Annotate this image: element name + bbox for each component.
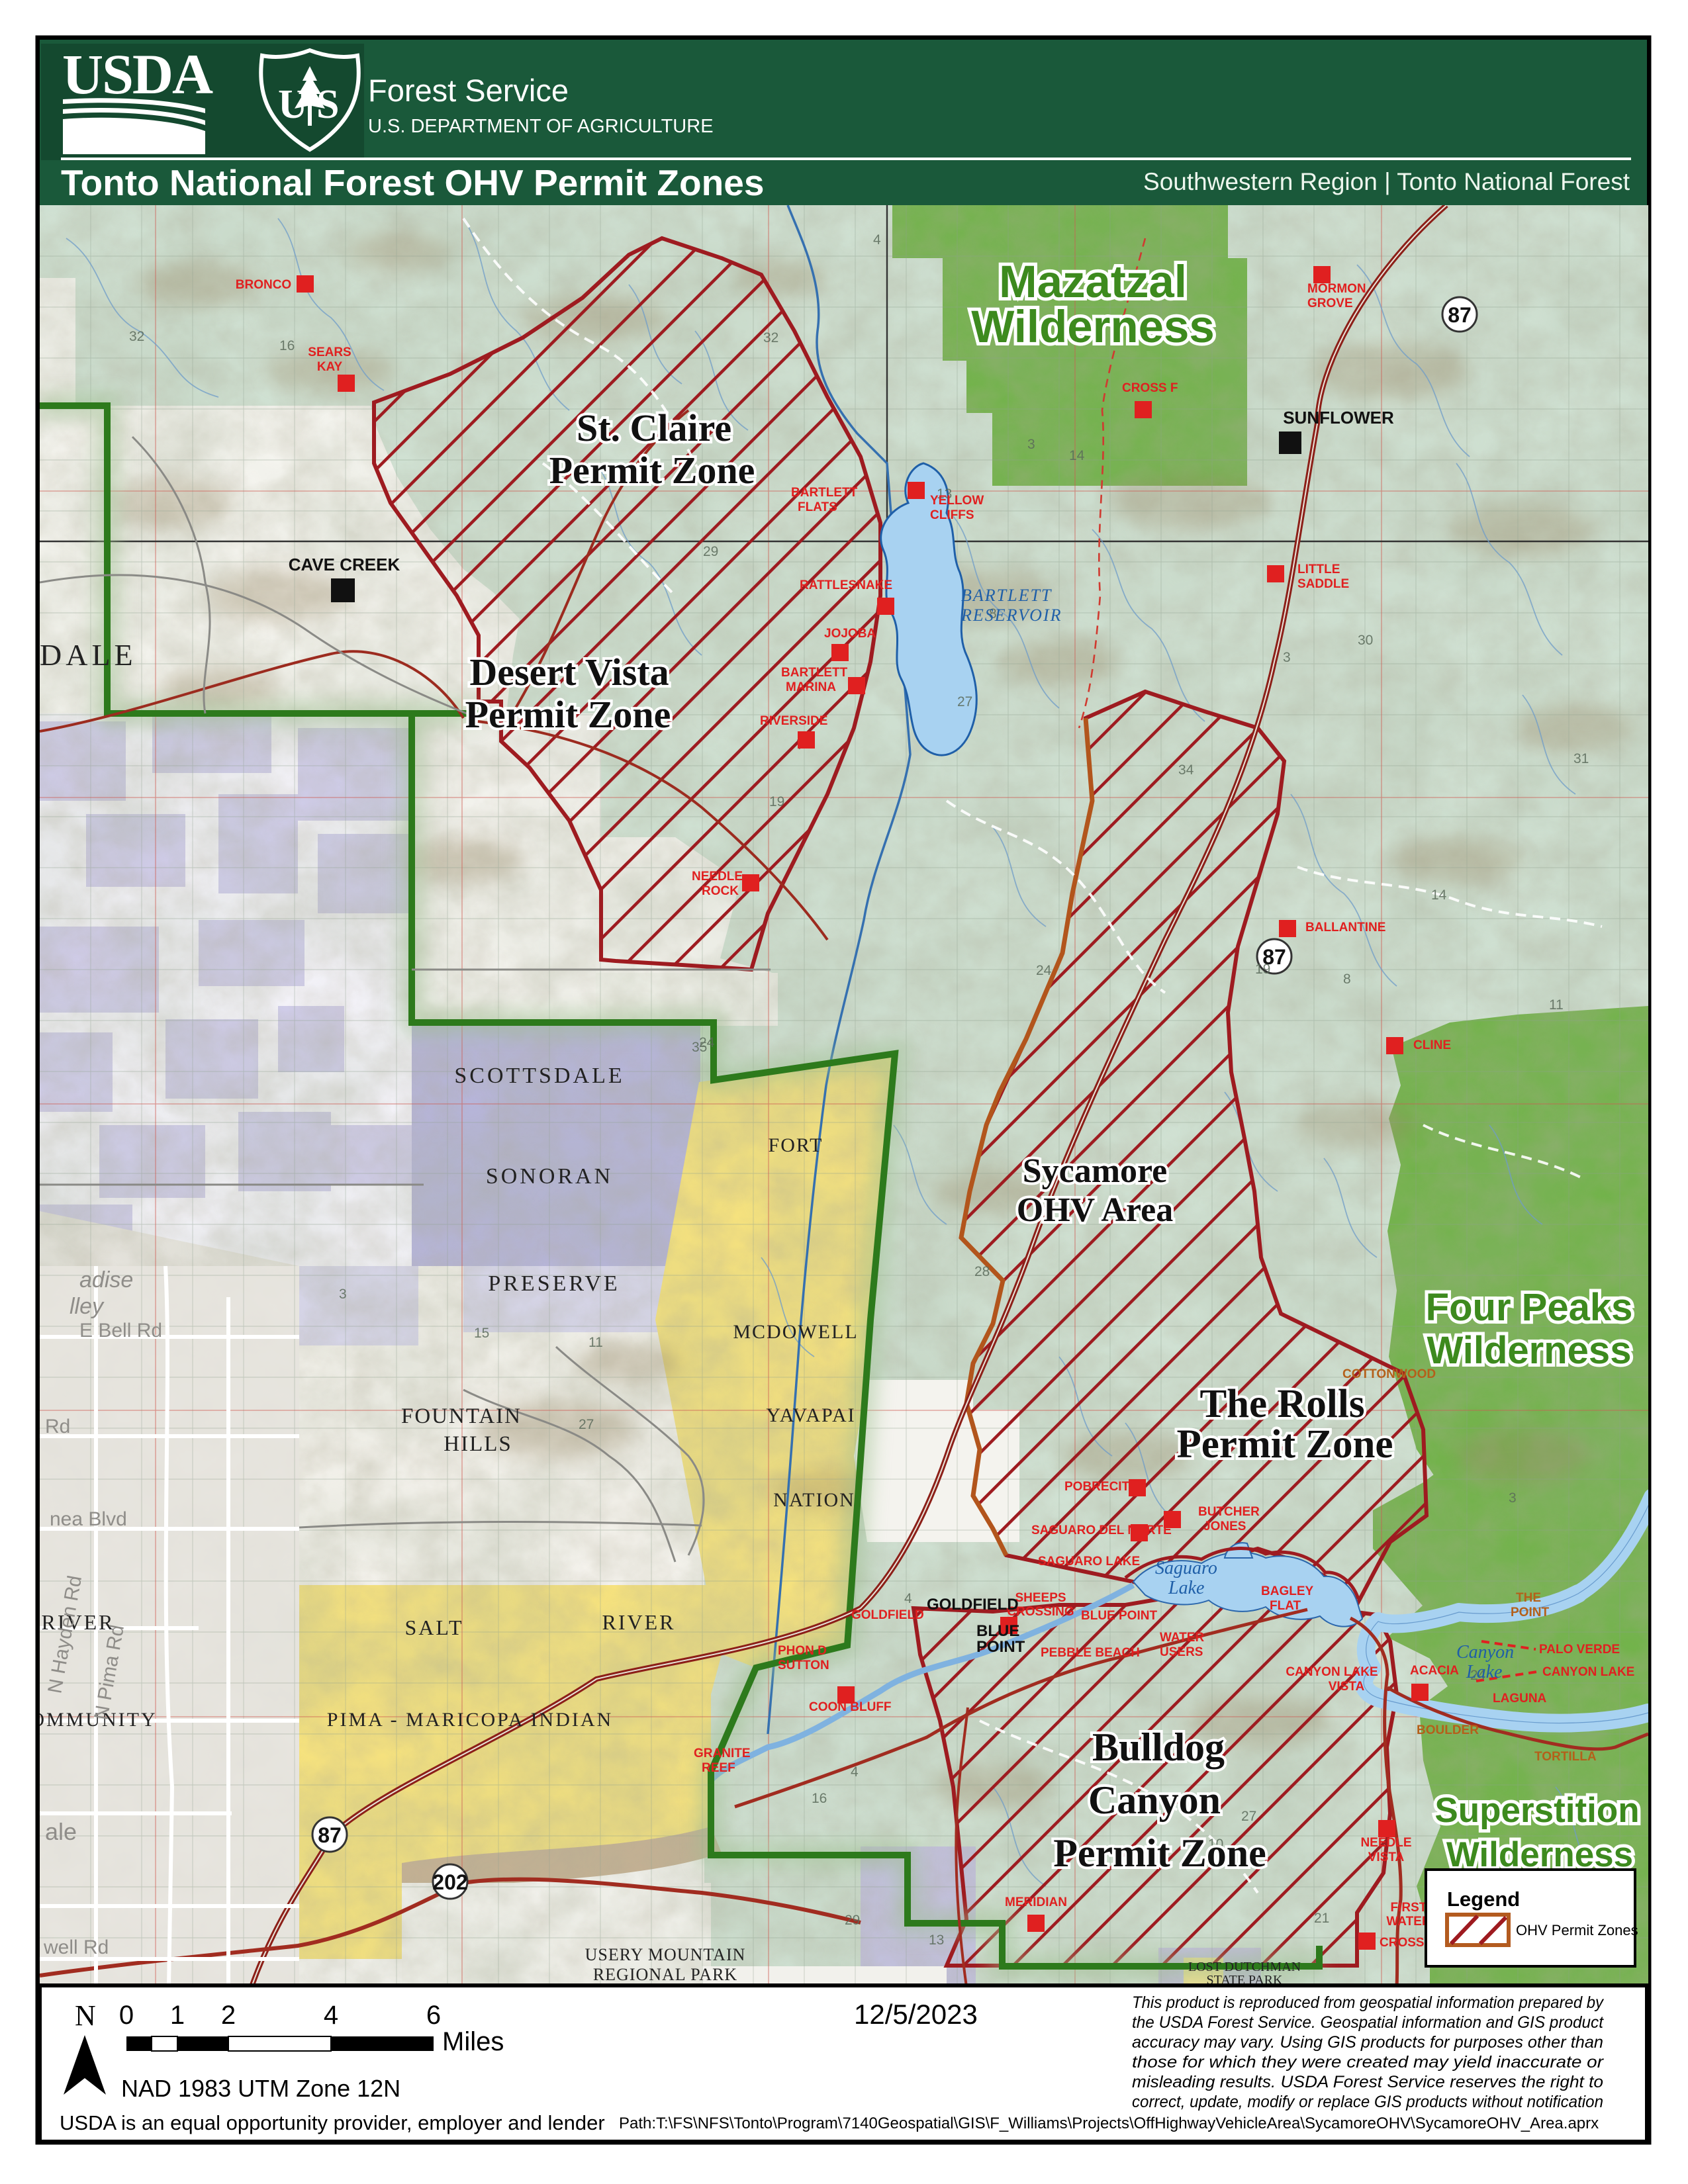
svg-text:CANYON LAKE: CANYON LAKE: [1286, 1665, 1378, 1679]
svg-text:YAVAPAI: YAVAPAI: [766, 1404, 855, 1426]
svg-text:27: 27: [1241, 1809, 1256, 1824]
svg-text:RATTLESNAKE: RATTLESNAKE: [800, 578, 892, 592]
svg-text:OHV Permit Zones: OHV Permit Zones: [1516, 1922, 1638, 1938]
svg-text:PHON D: PHON D: [778, 1644, 827, 1658]
svg-text:USDA: USDA: [62, 42, 213, 106]
svg-text:LITTLE: LITTLE: [1297, 563, 1340, 576]
svg-text:REGIONAL PARK: REGIONAL PARK: [593, 1965, 737, 1984]
svg-text:THE: THE: [1516, 1591, 1541, 1605]
svg-text:FOUNTAIN: FOUNTAIN: [401, 1404, 522, 1428]
svg-text:SALT: SALT: [404, 1615, 463, 1639]
svg-text:21: 21: [1314, 1911, 1329, 1926]
svg-text:NEEDLE: NEEDLE: [692, 870, 743, 884]
svg-text:3: 3: [339, 1287, 347, 1302]
svg-text:Canyon: Canyon: [1456, 1642, 1514, 1662]
svg-text:JOJOBA: JOJOBA: [824, 627, 876, 641]
svg-text:30: 30: [1358, 633, 1373, 648]
svg-text:15: 15: [474, 1326, 489, 1341]
svg-text:Wilderness: Wilderness: [971, 301, 1215, 352]
svg-text:3: 3: [1509, 1490, 1517, 1506]
svg-text:MARINA: MARINA: [786, 680, 836, 694]
svg-text:Miles: Miles: [442, 2027, 504, 2056]
svg-text:ROCK: ROCK: [702, 884, 739, 898]
svg-text:BRONCO: BRONCO: [236, 278, 291, 292]
svg-text:VISTA: VISTA: [1368, 1850, 1405, 1864]
svg-text:32: 32: [763, 330, 778, 345]
svg-text:Permit Zone: Permit Zone: [549, 449, 755, 492]
svg-text:HILLS: HILLS: [444, 1432, 512, 1456]
svg-text:4: 4: [904, 1591, 912, 1606]
svg-text:19: 19: [1255, 962, 1270, 977]
svg-text:87: 87: [1448, 303, 1472, 327]
svg-text:202: 202: [432, 1870, 467, 1894]
svg-text:ale: ale: [45, 1818, 77, 1845]
svg-text:11: 11: [1549, 997, 1564, 1013]
svg-text:BOULDER: BOULDER: [1417, 1723, 1479, 1737]
svg-text:Lake: Lake: [1466, 1662, 1502, 1682]
svg-text:POINT: POINT: [1511, 1606, 1549, 1619]
svg-text:LOST DUTCHMAN: LOST DUTCHMAN: [1188, 1960, 1301, 1974]
svg-text:32: 32: [129, 329, 144, 344]
svg-text:SONORAN: SONORAN: [486, 1164, 613, 1189]
svg-text:U.S. DEPARTMENT OF AGRICULTURE: U.S. DEPARTMENT OF AGRICULTURE: [368, 116, 714, 137]
svg-text:BAGLEY: BAGLEY: [1261, 1584, 1314, 1598]
svg-text:Permit Zone: Permit Zone: [1053, 1831, 1266, 1875]
svg-text:RIVER: RIVER: [602, 1610, 676, 1634]
svg-text:29: 29: [703, 544, 718, 559]
svg-text:MCDOWELL: MCDOWELL: [733, 1321, 858, 1343]
svg-text:PEBBLE BEACH: PEBBLE BEACH: [1041, 1646, 1140, 1660]
svg-text:well Rd: well Rd: [43, 1936, 109, 1958]
svg-text:Tonto National Forest OHV Perm: Tonto National Forest OHV Permit Zones: [61, 162, 764, 203]
svg-text:NATION: NATION: [773, 1489, 855, 1511]
svg-text:BARTLETT: BARTLETT: [961, 586, 1052, 605]
svg-text:JONES: JONES: [1203, 1520, 1246, 1533]
svg-text:1: 1: [170, 2001, 185, 2030]
svg-text:The Rolls: The Rolls: [1199, 1382, 1364, 1426]
svg-text:12/5/2023: 12/5/2023: [854, 1999, 978, 2030]
svg-text:N: N: [75, 1999, 96, 2032]
svg-text:GRANITE: GRANITE: [694, 1747, 751, 1760]
svg-text:VISTA: VISTA: [1329, 1680, 1365, 1694]
svg-text:24: 24: [1036, 963, 1052, 978]
svg-text:27: 27: [957, 694, 972, 709]
svg-text:Lake: Lake: [1168, 1578, 1204, 1598]
svg-text:11: 11: [588, 1335, 603, 1350]
svg-text:LAGUNA: LAGUNA: [1493, 1692, 1547, 1706]
svg-text:DALE: DALE: [40, 638, 137, 672]
svg-text:3: 3: [1283, 650, 1291, 665]
svg-text:BLUE POINT: BLUE POINT: [1081, 1609, 1157, 1623]
svg-text:OHV Area: OHV Area: [1017, 1191, 1173, 1229]
svg-text:Legend: Legend: [1447, 1888, 1520, 1911]
svg-text:NEEDLE: NEEDLE: [1360, 1836, 1411, 1850]
svg-text:E Bell Rd: E Bell Rd: [79, 1320, 162, 1342]
svg-text:16: 16: [812, 1791, 827, 1806]
svg-text:adise: adise: [79, 1267, 133, 1293]
svg-text:WATER: WATER: [1386, 1915, 1430, 1929]
svg-text:Forest Service: Forest Service: [368, 73, 569, 108]
svg-text:Permit Zone: Permit Zone: [465, 693, 671, 736]
svg-text:RESERVOIR: RESERVOIR: [961, 606, 1062, 625]
svg-text:3: 3: [1027, 437, 1035, 452]
svg-text:GOLDFIELD: GOLDFIELD: [927, 1596, 1019, 1614]
svg-text:13: 13: [929, 1933, 944, 1948]
svg-text:FLATS: FLATS: [798, 500, 837, 514]
svg-text:Desert Vista: Desert Vista: [469, 651, 669, 694]
svg-text:BARTLETT: BARTLETT: [781, 666, 848, 680]
svg-text:BALLANTINE: BALLANTINE: [1305, 921, 1385, 934]
svg-text:SAGUARO LAKE: SAGUARO LAKE: [1038, 1555, 1140, 1569]
svg-text:FIRST: FIRST: [1391, 1901, 1427, 1915]
svg-text:SUTTON: SUTTON: [778, 1659, 829, 1672]
svg-text:WATER: WATER: [1160, 1631, 1204, 1645]
svg-text:Rd: Rd: [45, 1416, 70, 1437]
svg-text:16: 16: [279, 338, 295, 353]
svg-text:YELLOW: YELLOW: [930, 494, 984, 508]
svg-text:Mazatzal: Mazatzal: [999, 256, 1187, 307]
svg-text:0: 0: [119, 2001, 134, 2030]
svg-text:29: 29: [845, 1913, 860, 1928]
svg-text:BARTLETT: BARTLETT: [791, 486, 858, 500]
svg-text:SUNFLOWER: SUNFLOWER: [1283, 408, 1394, 428]
svg-text:SHEEPS: SHEEPS: [1015, 1591, 1066, 1605]
svg-text:NAD 1983 UTM Zone 12N: NAD 1983 UTM Zone 12N: [121, 2075, 400, 2102]
svg-text:FORT: FORT: [769, 1134, 823, 1156]
svg-text:POINT: POINT: [976, 1638, 1025, 1656]
svg-text:USERS: USERS: [1160, 1645, 1203, 1659]
svg-text:accuracy may vary. Using GIS p: accuracy may vary. Using GIS products fo…: [1132, 2033, 1603, 2052]
svg-text:Sycamore: Sycamore: [1023, 1152, 1168, 1190]
svg-text:8: 8: [1343, 972, 1351, 987]
svg-text:Saguaro: Saguaro: [1155, 1558, 1217, 1578]
svg-text:SEARS: SEARS: [308, 345, 351, 359]
svg-text:PIMA - MARICOPA INDIAN: PIMA - MARICOPA INDIAN: [327, 1709, 613, 1731]
svg-text:MORMON: MORMON: [1307, 282, 1366, 296]
svg-text:This product is reproduced fro: This product is reproduced from geospati…: [1132, 1993, 1604, 2012]
svg-text:Path:T:\FS\NFS\Tonto\Program\7: Path:T:\FS\NFS\Tonto\Program\7140Geospat…: [619, 2115, 1599, 2132]
svg-text:RIVERSIDE: RIVERSIDE: [760, 714, 827, 728]
svg-text:28: 28: [974, 1264, 990, 1279]
svg-text:SADDLE: SADDLE: [1297, 577, 1349, 591]
svg-text:Wilderness: Wilderness: [1427, 1329, 1632, 1372]
svg-text:MERIDIAN: MERIDIAN: [1005, 1895, 1067, 1909]
svg-text:St. Claire: St. Claire: [577, 406, 731, 449]
svg-text:correct, update, modify or rep: correct, update, modify or replace GIS p…: [1132, 2093, 1603, 2111]
svg-text:CLIFFS: CLIFFS: [930, 508, 974, 522]
svg-text:CAVE CREEK: CAVE CREEK: [289, 555, 400, 574]
svg-text:nea Blvd: nea Blvd: [50, 1508, 127, 1530]
svg-text:SAGUARO DEL NORTE: SAGUARO DEL NORTE: [1031, 1524, 1172, 1537]
svg-text:4: 4: [324, 2001, 338, 2030]
svg-text:4: 4: [851, 1764, 859, 1780]
svg-text:35: 35: [692, 1040, 707, 1055]
svg-text:31: 31: [1573, 751, 1589, 766]
svg-text:lley: lley: [70, 1294, 105, 1319]
svg-text:USDA is an equal opportunity p: USDA is an equal opportunity provider, e…: [60, 2111, 605, 2134]
svg-text:GOLDFIELD: GOLDFIELD: [851, 1608, 924, 1622]
svg-text:USERY MOUNTAIN: USERY MOUNTAIN: [585, 1945, 746, 1964]
svg-text:SCOTTSDALE: SCOTTSDALE: [454, 1064, 624, 1088]
svg-text:87: 87: [318, 1823, 342, 1847]
svg-text:Bulldog: Bulldog: [1092, 1725, 1225, 1769]
svg-text:FLAT: FLAT: [1270, 1599, 1301, 1613]
svg-text:CANYON LAKE: CANYON LAKE: [1542, 1665, 1634, 1679]
svg-text:PRESERVE: PRESERVE: [488, 1271, 620, 1296]
svg-text:POBRECITO: POBRECITO: [1064, 1480, 1139, 1494]
svg-text:BUTCHER: BUTCHER: [1198, 1505, 1260, 1519]
svg-text:REEF: REEF: [702, 1761, 735, 1775]
svg-text:34: 34: [1178, 762, 1194, 778]
svg-text:ACACIA: ACACIA: [1410, 1664, 1459, 1678]
svg-text:2: 2: [221, 2001, 236, 2030]
svg-text:6: 6: [426, 2001, 441, 2030]
svg-text:BLUE: BLUE: [976, 1622, 1019, 1640]
svg-text:KAY: KAY: [317, 360, 343, 374]
svg-text:TORTILLA: TORTILLA: [1534, 1750, 1597, 1764]
svg-text:those for which they were crea: those for which they were created may yi…: [1132, 2053, 1605, 2071]
svg-text:CROSS F: CROSS F: [1122, 381, 1178, 395]
svg-text:Canyon: Canyon: [1088, 1778, 1221, 1822]
svg-text:14: 14: [1069, 448, 1085, 463]
svg-text:27: 27: [579, 1417, 594, 1432]
svg-text:CLINE: CLINE: [1413, 1038, 1451, 1052]
svg-text:Permit Zone: Permit Zone: [1177, 1422, 1393, 1467]
svg-text:GROVE: GROVE: [1307, 296, 1353, 310]
svg-text:19: 19: [769, 794, 784, 809]
svg-text:misleading results. USDA Fores: misleading results. USDA Forest Service …: [1132, 2073, 1603, 2091]
svg-text:14: 14: [1431, 887, 1447, 903]
svg-text:COTTONWOOD: COTTONWOOD: [1342, 1367, 1436, 1381]
svg-text:4: 4: [873, 232, 881, 248]
svg-text:Southwestern Region | Tonto Na: Southwestern Region | Tonto National For…: [1143, 168, 1630, 195]
svg-text:PALO VERDE: PALO VERDE: [1539, 1643, 1620, 1657]
svg-text:the USDA Forest Service. Geosp: the USDA Forest Service. Geospatial info…: [1132, 2013, 1604, 2032]
svg-text:Superstition: Superstition: [1434, 1791, 1639, 1830]
svg-text:Four Peaks: Four Peaks: [1426, 1286, 1633, 1329]
